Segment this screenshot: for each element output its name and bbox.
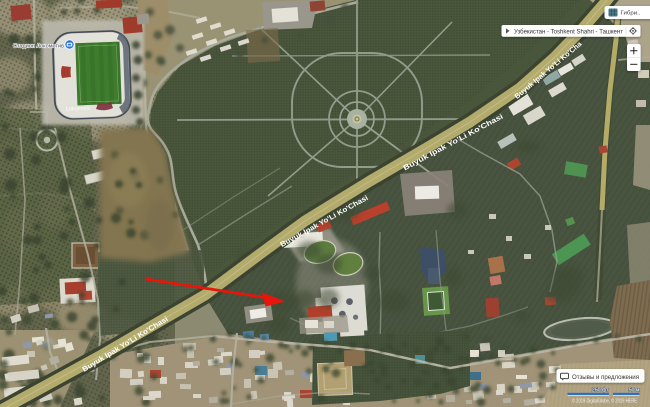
svg-text:Lokomotiv: Lokomotiv bbox=[66, 106, 91, 113]
svg-text:© 2019 DigitalGlobe, © 2019 HE: © 2019 DigitalGlobe, © 2019 HERE bbox=[572, 397, 638, 404]
svg-text:Гибри..: Гибри.. bbox=[621, 11, 641, 17]
svg-text:Узбекистан - Toshkent Shahri -: Узбекистан - Toshkent Shahri - Ташкент bbox=[514, 28, 623, 36]
svg-text:Отзывы и предложения: Отзывы и предложения bbox=[572, 374, 639, 381]
svg-text:50 м: 50 м bbox=[629, 387, 640, 393]
svg-text:250 фт: 250 фт bbox=[592, 387, 609, 393]
svg-text:Стадион Локомотив: Стадион Локомотив bbox=[13, 43, 64, 49]
